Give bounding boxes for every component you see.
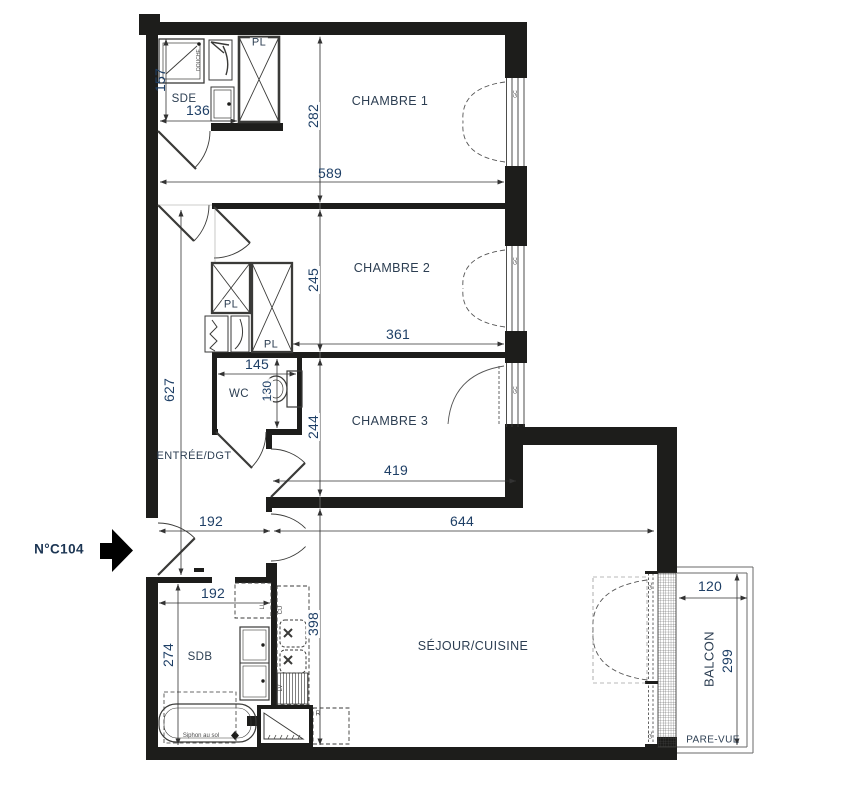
room-label-entree: ENTRÉE/DGT [157, 450, 232, 462]
room-label-balcon: BALCON [702, 631, 717, 687]
floor-drain-label: Siphon au sol [183, 733, 219, 739]
washing-machine-label: LL [260, 603, 266, 610]
dim-sdb-width: 192 [201, 585, 225, 601]
pare-vue-label: PARE-VUE [686, 735, 740, 746]
dim-balcon-width: 120 [698, 578, 722, 594]
dim-chambre2-width: 361 [386, 326, 410, 342]
window-balcony-door [593, 571, 676, 747]
walls [139, 14, 677, 760]
dim-sde-width: 136 [186, 102, 210, 118]
guardrail-label-3: GC [513, 386, 519, 394]
dishwasher-label: LV [278, 685, 284, 692]
floor-plan: N°C104 CHAMBRE 1 CHAMBRE 2 CHAMBRE 3 SÉJ… [0, 0, 863, 800]
fixtures [159, 37, 349, 745]
dim-sejour-depth: 398 [306, 610, 320, 638]
unit-number-label: N°C104 [34, 542, 84, 557]
closet-label-3: PL [262, 340, 280, 351]
room-label-sejour-cuisine: SÉJOUR/CUISINE [418, 639, 528, 653]
dim-sde-depth: 157 [152, 68, 168, 92]
dim-wc-depth: 130 [261, 379, 273, 404]
dim-chambre3-depth: 244 [306, 413, 320, 441]
dim-wc-width: 145 [245, 356, 269, 372]
guardrail-label-5: GC [648, 731, 654, 739]
closet-label-2: PL [222, 300, 240, 311]
dim-chambre1-width: 589 [318, 165, 342, 181]
entrance-arrow-icon [100, 529, 133, 572]
dim-chambre3-width: 419 [384, 462, 408, 478]
dim-chambre1-depth: 282 [306, 102, 320, 130]
fridge-label: R [315, 711, 320, 718]
dim-sejour-width: 644 [450, 513, 474, 529]
kitchen-unit-label: CU [278, 606, 284, 615]
room-label-wc: WC [229, 388, 249, 400]
shower-label: DOUCHE [196, 49, 202, 71]
room-label-sdb: SDB [188, 651, 213, 663]
floor-plan-drawing [0, 0, 863, 800]
dim-entree-width: 192 [199, 513, 223, 529]
dim-entree-depth: 627 [161, 378, 177, 402]
closet-label-1: PL [250, 38, 268, 49]
guardrail-label-4: GC [648, 582, 654, 590]
guardrail-label-2: GC [513, 257, 519, 265]
dim-sdb-depth: 274 [160, 643, 176, 667]
guardrail-label-1: GC [513, 90, 519, 98]
dim-chambre2-depth: 245 [306, 266, 320, 294]
room-label-chambre1: CHAMBRE 1 [352, 94, 429, 108]
dim-balcon-depth: 299 [719, 649, 735, 673]
room-label-chambre2: CHAMBRE 2 [354, 261, 431, 275]
room-label-chambre3: CHAMBRE 3 [352, 414, 429, 428]
